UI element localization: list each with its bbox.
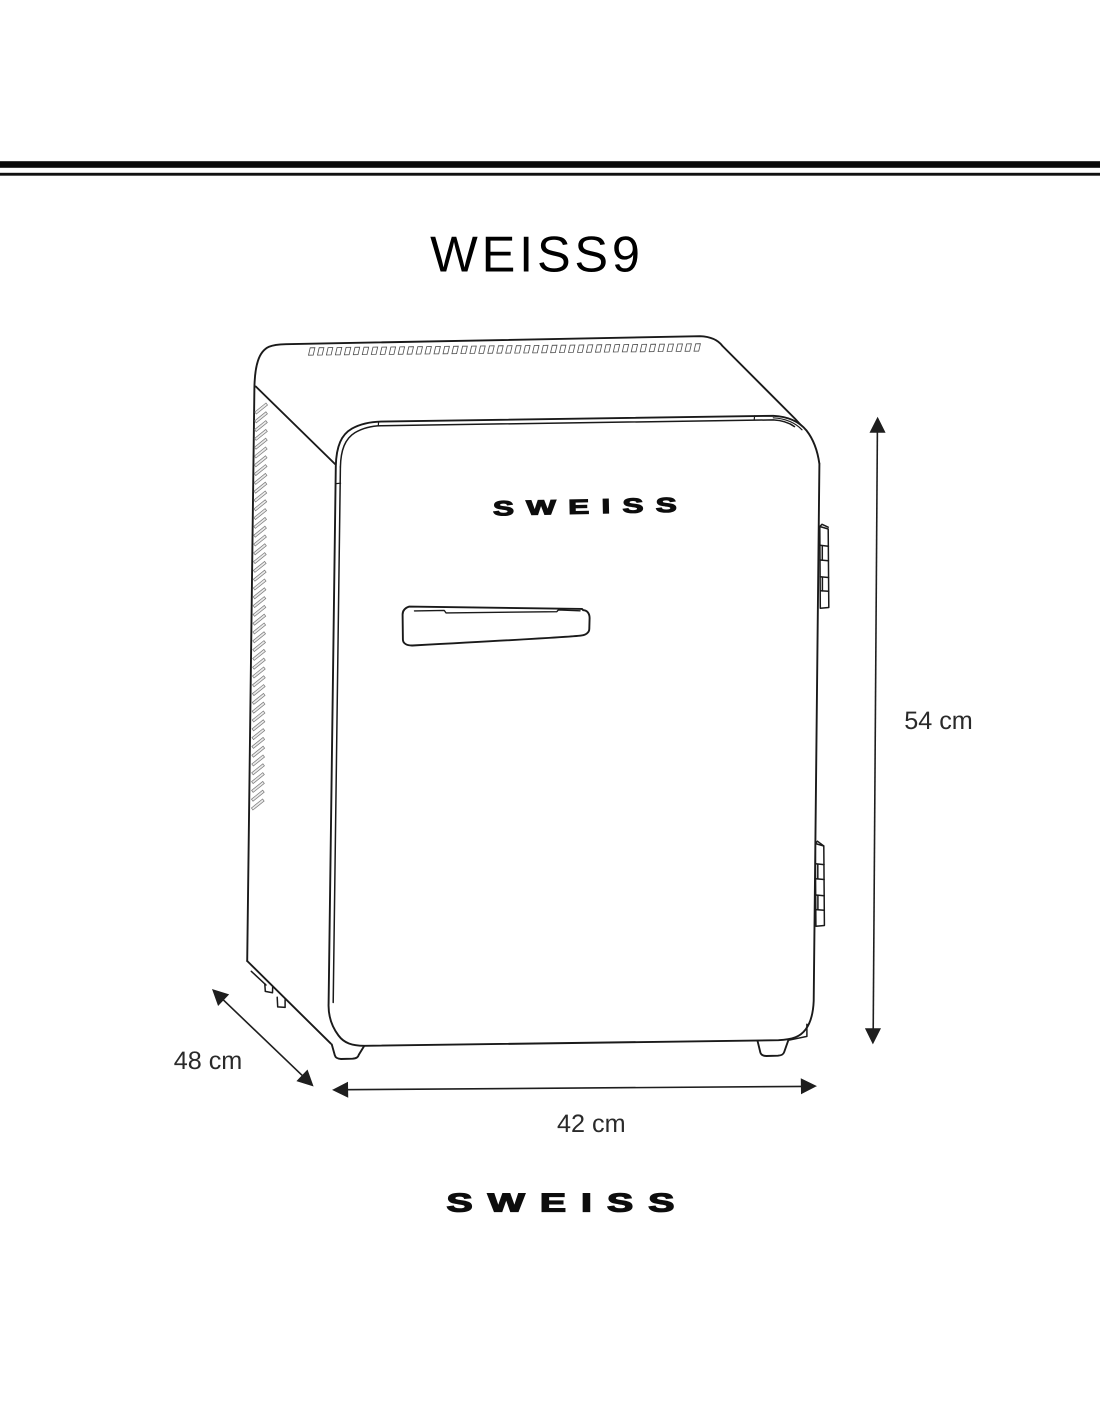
svg-text:SWEISS: SWEISS — [493, 494, 689, 521]
svg-text:WEISS9: WEISS9 — [430, 226, 644, 283]
svg-text:42 cm: 42 cm — [557, 1110, 626, 1138]
svg-text:48 cm: 48 cm — [174, 1047, 243, 1075]
svg-text:SWEISS: SWEISS — [447, 1188, 690, 1218]
svg-text:54 cm: 54 cm — [904, 707, 973, 735]
